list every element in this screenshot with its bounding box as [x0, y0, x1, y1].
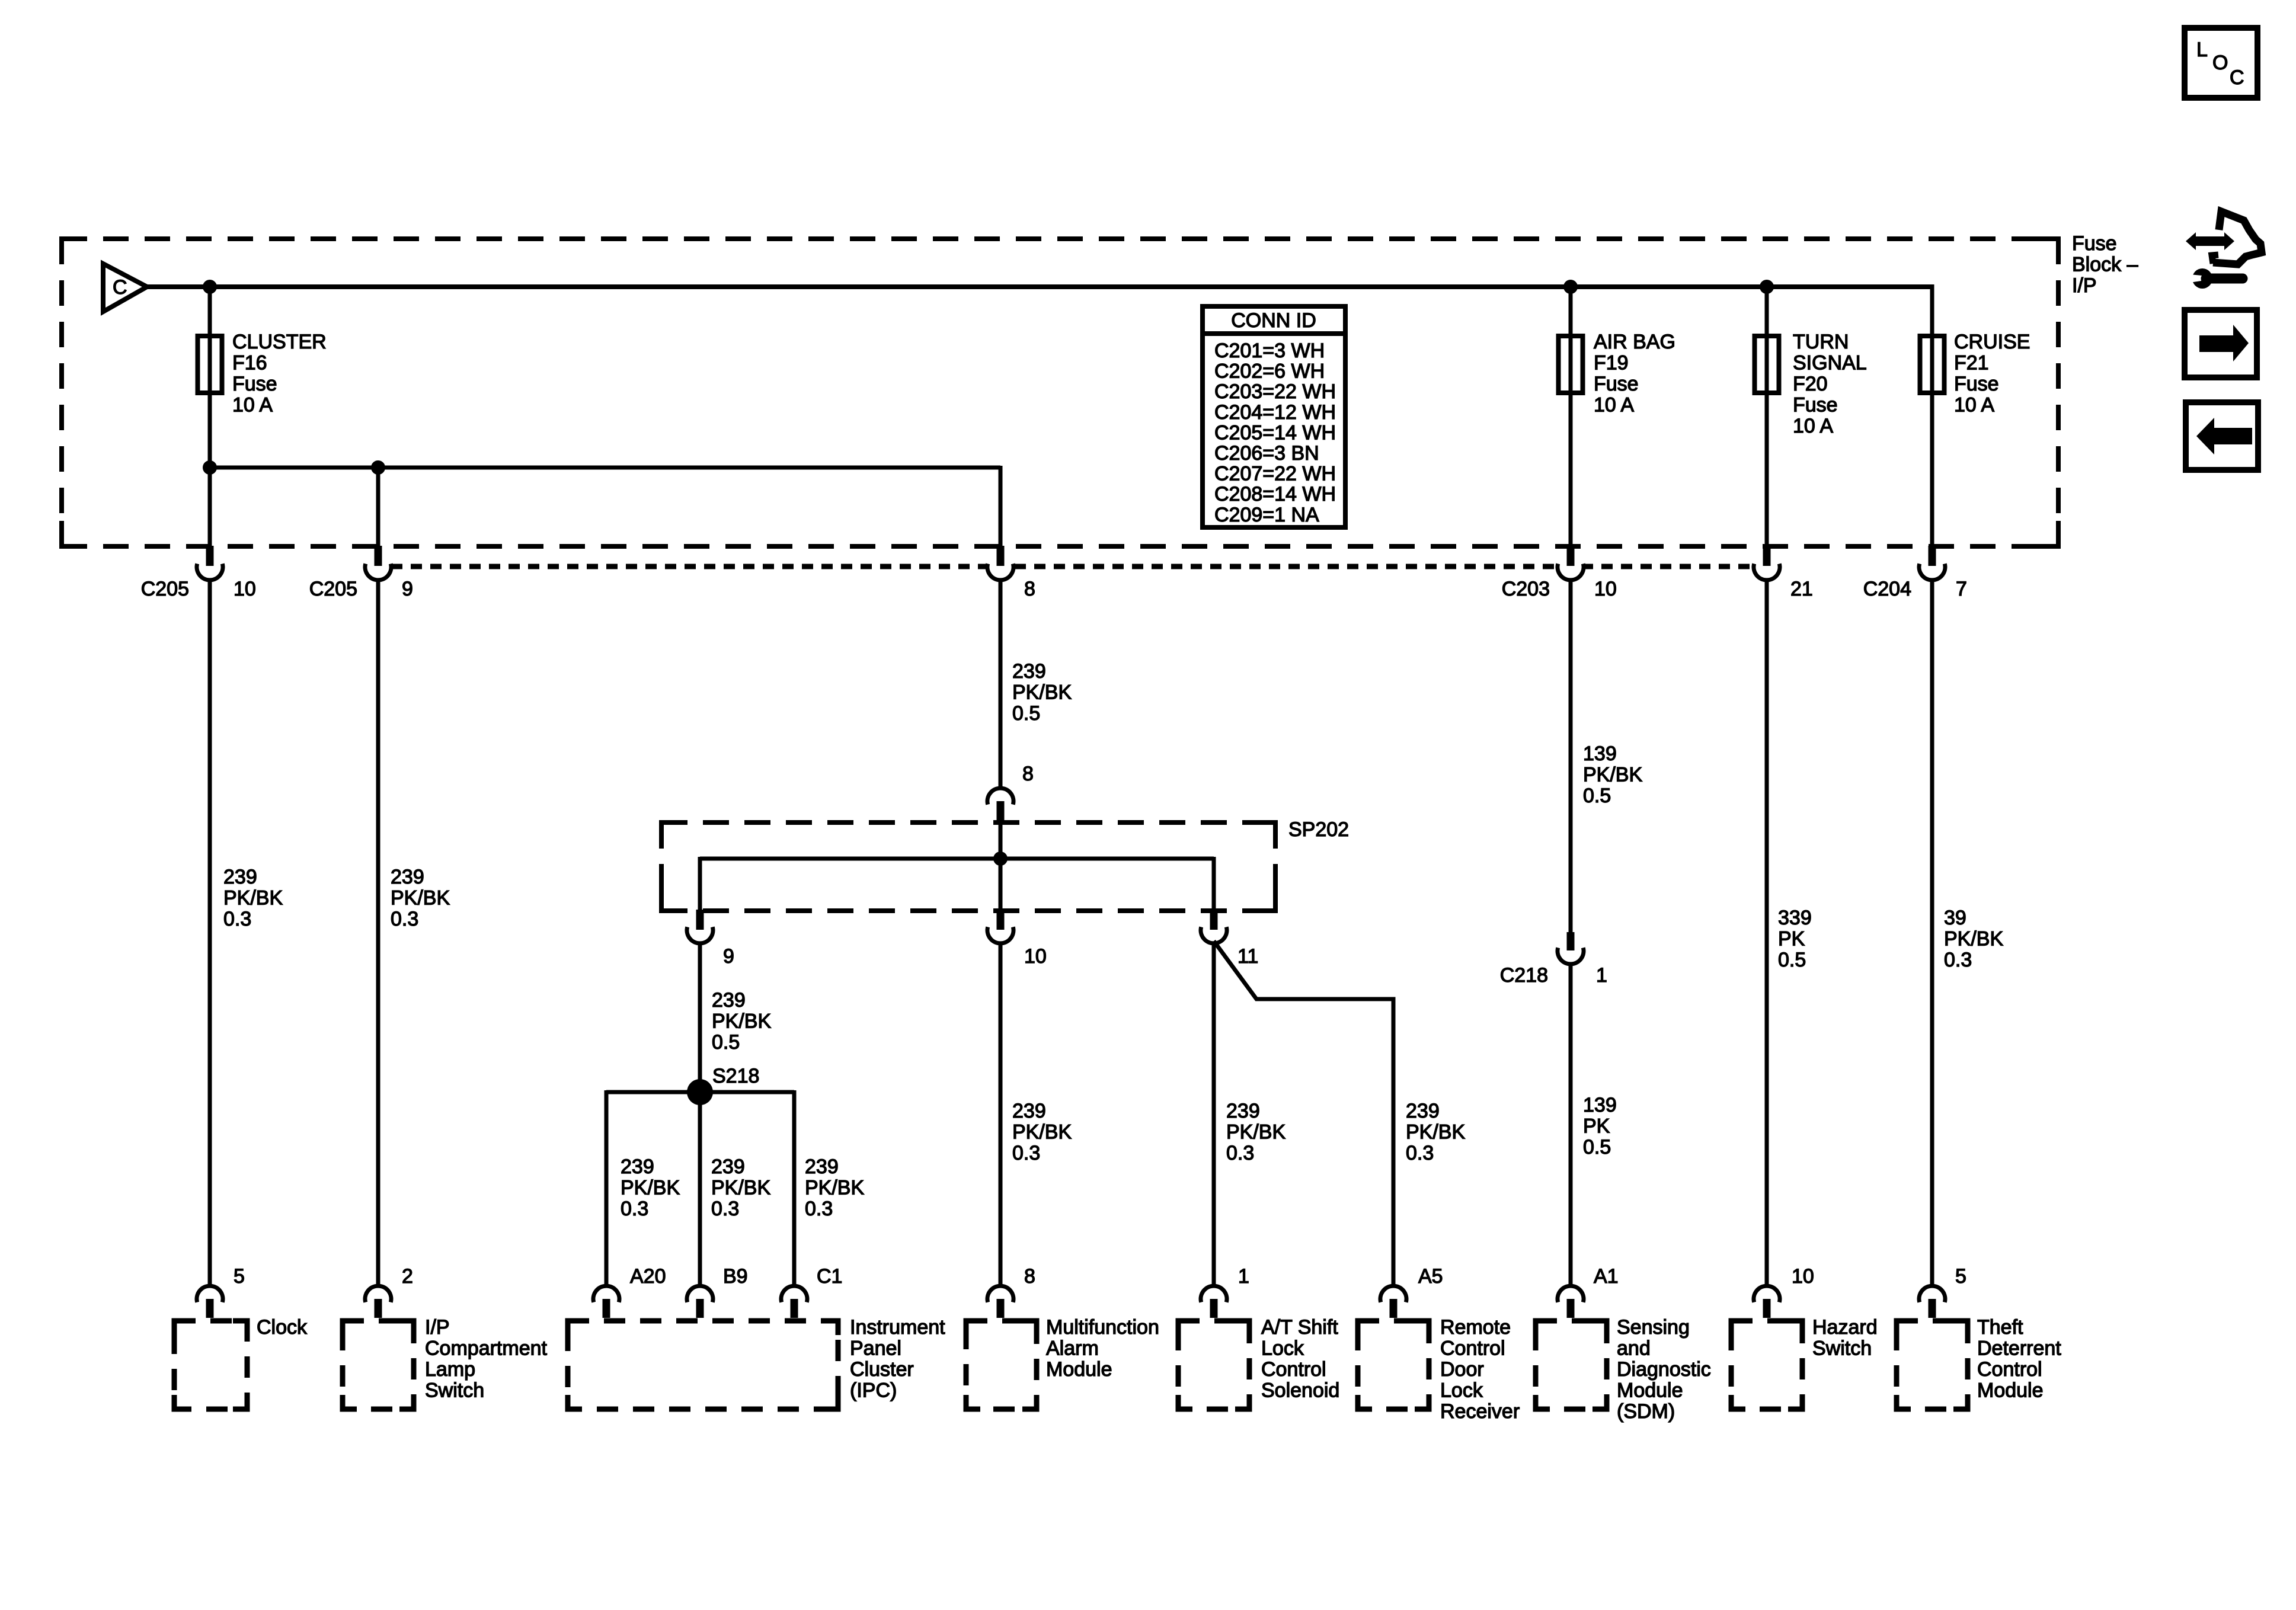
svg-text:PK/BK: PK/BK: [1406, 1121, 1465, 1144]
svg-text:Lock: Lock: [1440, 1379, 1483, 1402]
svg-text:Theft: Theft: [1977, 1316, 2023, 1339]
svg-text:PK/BK: PK/BK: [711, 1177, 770, 1199]
svg-text:1: 1: [1596, 964, 1607, 987]
svg-text:Lamp: Lamp: [425, 1358, 475, 1381]
svg-text:C205=14 WH: C205=14 WH: [1214, 421, 1336, 444]
svg-text:CONN ID: CONN ID: [1231, 309, 1316, 332]
svg-text:PK/BK: PK/BK: [223, 887, 283, 910]
svg-text:0.3: 0.3: [621, 1198, 648, 1220]
svg-text:239: 239: [1012, 1100, 1046, 1122]
svg-text:0.3: 0.3: [1944, 949, 1972, 971]
svg-text:Diagnostic: Diagnostic: [1617, 1358, 1711, 1381]
svg-text:Door: Door: [1440, 1358, 1484, 1381]
svg-text:C206=3 BN: C206=3 BN: [1214, 442, 1319, 465]
svg-text:I/P: I/P: [2072, 274, 2097, 297]
svg-text:PK/BK: PK/BK: [1012, 1121, 1072, 1144]
svg-text:I/P: I/P: [425, 1316, 450, 1339]
svg-text:TURN: TURN: [1793, 331, 1849, 353]
svg-text:A1: A1: [1594, 1265, 1619, 1288]
svg-text:10: 10: [1024, 945, 1047, 968]
svg-text:Clock: Clock: [257, 1316, 308, 1339]
svg-text:C204: C204: [1863, 578, 1911, 600]
svg-text:9: 9: [402, 578, 413, 600]
svg-text:10 A: 10 A: [1594, 394, 1634, 417]
svg-text:Module: Module: [1617, 1379, 1683, 1402]
svg-text:O: O: [2212, 52, 2228, 74]
svg-text:1: 1: [1238, 1265, 1249, 1288]
svg-text:10: 10: [1594, 578, 1617, 600]
svg-text:0.5: 0.5: [712, 1031, 740, 1054]
svg-text:Control: Control: [1440, 1337, 1505, 1360]
svg-text:AIR BAG: AIR BAG: [1594, 331, 1675, 353]
svg-text:Switch: Switch: [1812, 1337, 1872, 1360]
svg-text:Instrument: Instrument: [850, 1316, 945, 1339]
svg-text:and: and: [1617, 1337, 1651, 1360]
svg-text:0.3: 0.3: [1012, 1142, 1040, 1164]
svg-text:239: 239: [1406, 1100, 1440, 1122]
svg-text:(SDM): (SDM): [1617, 1400, 1675, 1423]
svg-text:C203: C203: [1502, 578, 1550, 600]
svg-text:Fuse: Fuse: [1954, 373, 1999, 395]
svg-text:C205: C205: [309, 578, 357, 600]
svg-text:8: 8: [1022, 763, 1034, 785]
svg-text:239: 239: [1226, 1100, 1260, 1122]
svg-text:A/T Shift: A/T Shift: [1261, 1316, 1338, 1339]
svg-text:0.3: 0.3: [805, 1198, 833, 1220]
svg-text:A20: A20: [630, 1265, 666, 1288]
svg-text:C: C: [113, 276, 127, 299]
svg-text:PK/BK: PK/BK: [1583, 764, 1642, 786]
svg-text:5: 5: [234, 1265, 245, 1288]
svg-text:Block –: Block –: [2072, 254, 2138, 276]
svg-text:0.5: 0.5: [1778, 949, 1806, 971]
svg-text:Module: Module: [1046, 1358, 1112, 1381]
svg-text:CLUSTER: CLUSTER: [232, 331, 327, 353]
svg-text:239: 239: [712, 989, 746, 1012]
svg-text:F21: F21: [1954, 352, 1989, 375]
svg-text:10 A: 10 A: [232, 394, 273, 417]
svg-text:10: 10: [234, 578, 256, 600]
svg-text:Alarm: Alarm: [1046, 1337, 1099, 1360]
svg-text:Receiver: Receiver: [1440, 1400, 1520, 1423]
svg-text:PK/BK: PK/BK: [391, 887, 450, 910]
svg-text:2: 2: [402, 1265, 413, 1288]
svg-text:PK/BK: PK/BK: [712, 1010, 771, 1033]
svg-text:0.5: 0.5: [1583, 785, 1611, 807]
svg-text:PK/BK: PK/BK: [1226, 1121, 1285, 1144]
svg-text:CRUISE: CRUISE: [1954, 331, 2030, 353]
svg-text:10 A: 10 A: [1793, 415, 1833, 437]
svg-text:C: C: [2230, 66, 2244, 89]
svg-text:7: 7: [1956, 578, 1967, 600]
svg-text:C201=3 WH: C201=3 WH: [1214, 340, 1325, 362]
svg-text:Panel: Panel: [850, 1337, 901, 1360]
svg-text:C1: C1: [817, 1265, 842, 1288]
svg-text:C203=22 WH: C203=22 WH: [1214, 380, 1336, 403]
svg-text:Compartment: Compartment: [425, 1337, 548, 1360]
svg-text:5: 5: [1955, 1265, 1966, 1288]
svg-text:239: 239: [1012, 660, 1046, 683]
svg-text:0.5: 0.5: [1583, 1136, 1611, 1158]
svg-text:0.3: 0.3: [391, 908, 418, 930]
svg-text:239: 239: [621, 1156, 654, 1178]
svg-text:S218: S218: [712, 1065, 759, 1087]
svg-text:0.5: 0.5: [1012, 702, 1040, 725]
svg-text:PK/BK: PK/BK: [1944, 928, 2003, 950]
svg-text:PK/BK: PK/BK: [621, 1177, 680, 1199]
svg-text:C204=12 WH: C204=12 WH: [1214, 401, 1336, 424]
svg-text:Fuse: Fuse: [232, 373, 277, 395]
svg-text:11: 11: [1237, 945, 1258, 968]
svg-text:Module: Module: [1977, 1379, 2044, 1402]
svg-text:PK: PK: [1778, 928, 1805, 950]
svg-text:239: 239: [711, 1156, 745, 1178]
svg-text:0.3: 0.3: [1226, 1142, 1254, 1164]
svg-text:Control: Control: [1261, 1358, 1326, 1381]
svg-text:A5: A5: [1418, 1265, 1443, 1288]
svg-text:Lock: Lock: [1261, 1337, 1304, 1360]
svg-text:L: L: [2196, 39, 2208, 61]
svg-text:Remote: Remote: [1440, 1316, 1511, 1339]
svg-text:Control: Control: [1977, 1358, 2042, 1381]
svg-text:B9: B9: [723, 1265, 748, 1288]
svg-text:239: 239: [223, 866, 257, 888]
svg-text:SIGNAL: SIGNAL: [1793, 352, 1867, 375]
svg-text:C205: C205: [141, 578, 189, 600]
svg-text:Fuse: Fuse: [1793, 394, 1838, 417]
svg-text:SP202: SP202: [1288, 818, 1349, 841]
svg-text:C202=6 WH: C202=6 WH: [1214, 360, 1325, 383]
svg-text:C218: C218: [1500, 964, 1548, 987]
svg-text:PK/BK: PK/BK: [1012, 681, 1072, 704]
svg-text:10: 10: [1792, 1265, 1814, 1288]
svg-text:339: 339: [1778, 907, 1812, 929]
svg-text:PK: PK: [1583, 1115, 1610, 1138]
svg-text:Fuse: Fuse: [2072, 232, 2117, 255]
svg-text:Switch: Switch: [425, 1379, 484, 1402]
svg-text:C209=1 NA: C209=1 NA: [1214, 504, 1319, 526]
svg-text:(IPC): (IPC): [850, 1379, 897, 1402]
svg-text:0.3: 0.3: [223, 908, 251, 930]
svg-text:F19: F19: [1594, 352, 1629, 375]
svg-text:0.3: 0.3: [1406, 1142, 1434, 1164]
svg-text:10 A: 10 A: [1954, 394, 1994, 417]
svg-text:21: 21: [1790, 578, 1813, 600]
svg-text:F16: F16: [232, 352, 267, 375]
svg-text:239: 239: [805, 1156, 839, 1178]
svg-text:8: 8: [1024, 578, 1035, 600]
svg-text:139: 139: [1583, 742, 1617, 765]
svg-text:8: 8: [1024, 1265, 1035, 1288]
svg-text:9: 9: [723, 945, 734, 968]
svg-text:0.3: 0.3: [711, 1198, 739, 1220]
svg-text:Fuse: Fuse: [1594, 373, 1639, 395]
svg-text:Cluster: Cluster: [850, 1358, 914, 1381]
svg-text:Hazard: Hazard: [1812, 1316, 1878, 1339]
svg-text:Sensing: Sensing: [1617, 1316, 1690, 1339]
svg-text:F20: F20: [1793, 373, 1828, 395]
svg-text:PK/BK: PK/BK: [805, 1177, 864, 1199]
svg-text:Solenoid: Solenoid: [1261, 1379, 1339, 1402]
svg-text:39: 39: [1944, 907, 1966, 929]
svg-text:Multifunction: Multifunction: [1046, 1316, 1159, 1339]
svg-text:C207=22 WH: C207=22 WH: [1214, 463, 1336, 485]
svg-text:C208=14 WH: C208=14 WH: [1214, 483, 1336, 505]
svg-text:139: 139: [1583, 1094, 1617, 1116]
svg-text:239: 239: [391, 866, 424, 888]
svg-text:Deterrent: Deterrent: [1977, 1337, 2061, 1360]
